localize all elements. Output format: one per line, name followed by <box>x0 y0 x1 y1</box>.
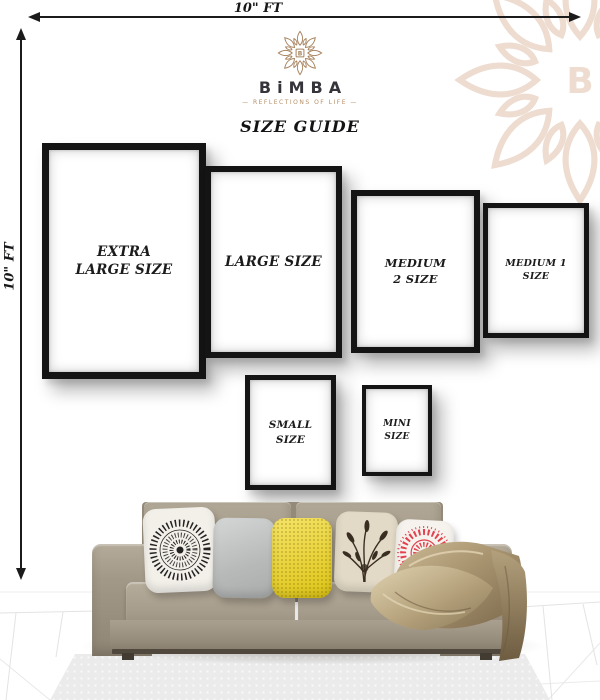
brand-flower-logo-icon: B <box>277 30 323 76</box>
frame-medium-2: MEDIUM 2 SIZE <box>351 190 480 353</box>
arrowhead-right-icon <box>569 12 581 22</box>
sofa-leg-left <box>122 653 134 660</box>
yellow-dotted-pillow <box>272 518 332 598</box>
frame-large: LARGE SIZE <box>205 166 342 358</box>
frame-small: SMALL SIZE <box>245 375 336 490</box>
frame-label: SMALL SIZE <box>267 418 315 446</box>
arrowhead-left-icon <box>28 12 40 22</box>
brand-watermark-flower-icon: B <box>452 0 600 208</box>
height-dimension-label: 10" FT <box>3 217 18 317</box>
arrowhead-up-icon <box>16 28 26 40</box>
width-dimension-label: 10" FT <box>183 1 333 16</box>
frame-label: MEDIUM 1 SIZE <box>505 258 567 284</box>
height-arrow-line <box>20 36 22 572</box>
frame-medium-1: MEDIUM 1 SIZE <box>483 203 589 338</box>
frame-extra-large: EXTRA LARGE SIZE <box>42 143 206 379</box>
brand-tagline: — REFLECTIONS OF LIFE — <box>207 99 393 106</box>
brand-wordmark: BiMBA <box>207 78 393 97</box>
frame-label: LARGE SIZE <box>220 253 328 271</box>
mandala-pattern-icon <box>142 506 218 593</box>
watermark-monogram: B <box>566 61 593 102</box>
frame-label: EXTRA LARGE SIZE <box>68 243 180 279</box>
arrowhead-down-icon <box>16 568 26 580</box>
frame-mini: MINI SIZE <box>362 385 432 476</box>
throw-blanket <box>343 536 533 662</box>
width-arrow-line <box>36 16 573 18</box>
sofa <box>88 498 522 664</box>
logo-monogram: B <box>298 50 303 57</box>
black-white-mandala-pillow <box>142 506 218 593</box>
frame-label: MEDIUM 2 SIZE <box>380 256 452 287</box>
brand-block: B BiMBA — REFLECTIONS OF LIFE — SIZE GUI… <box>207 30 393 136</box>
page-title: SIZE GUIDE <box>207 117 393 136</box>
size-guide-poster: B 10" FT 10" FT B <box>0 0 600 700</box>
plain-gray-pillow <box>212 517 275 598</box>
frame-label: MINI SIZE <box>379 418 415 442</box>
